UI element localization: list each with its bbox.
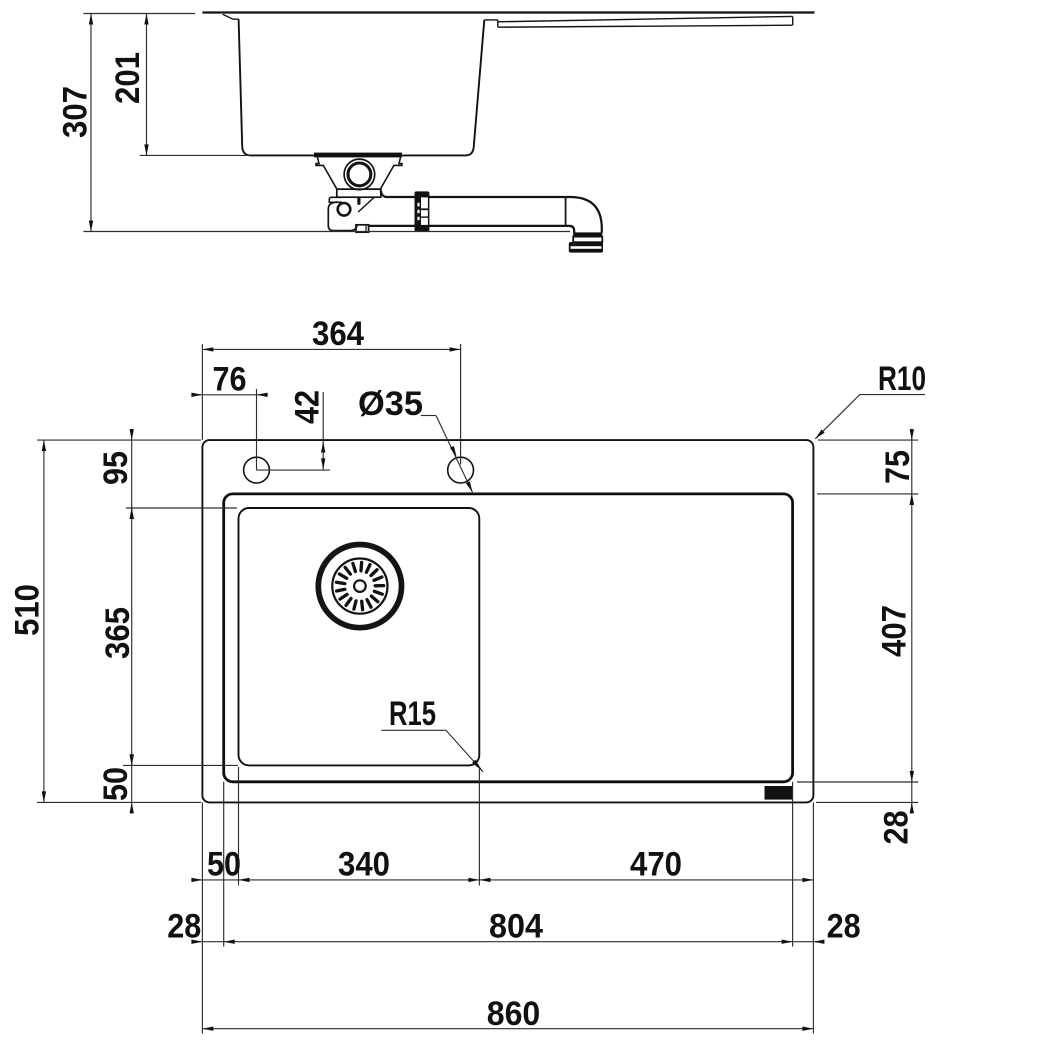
svg-text:201: 201 — [109, 52, 147, 104]
svg-text:28: 28 — [878, 811, 916, 845]
svg-text:75: 75 — [879, 450, 917, 484]
svg-text:364: 364 — [312, 315, 364, 353]
svg-text:50: 50 — [207, 845, 241, 883]
svg-text:407: 407 — [876, 605, 914, 657]
svg-text:307: 307 — [57, 86, 95, 138]
svg-text:28: 28 — [167, 907, 201, 945]
svg-text:Ø35: Ø35 — [358, 385, 423, 423]
svg-text:42: 42 — [289, 390, 327, 424]
svg-text:510: 510 — [9, 584, 47, 636]
svg-text:76: 76 — [213, 360, 247, 398]
svg-text:R10: R10 — [878, 360, 926, 398]
svg-text:804: 804 — [489, 907, 543, 945]
svg-text:28: 28 — [827, 907, 861, 945]
svg-text:340: 340 — [338, 845, 390, 883]
svg-text:470: 470 — [630, 845, 682, 883]
svg-text:R15: R15 — [389, 695, 436, 733]
svg-text:50: 50 — [97, 767, 135, 801]
svg-text:95: 95 — [97, 451, 135, 485]
svg-text:365: 365 — [99, 607, 137, 659]
svg-text:860: 860 — [487, 995, 541, 1033]
